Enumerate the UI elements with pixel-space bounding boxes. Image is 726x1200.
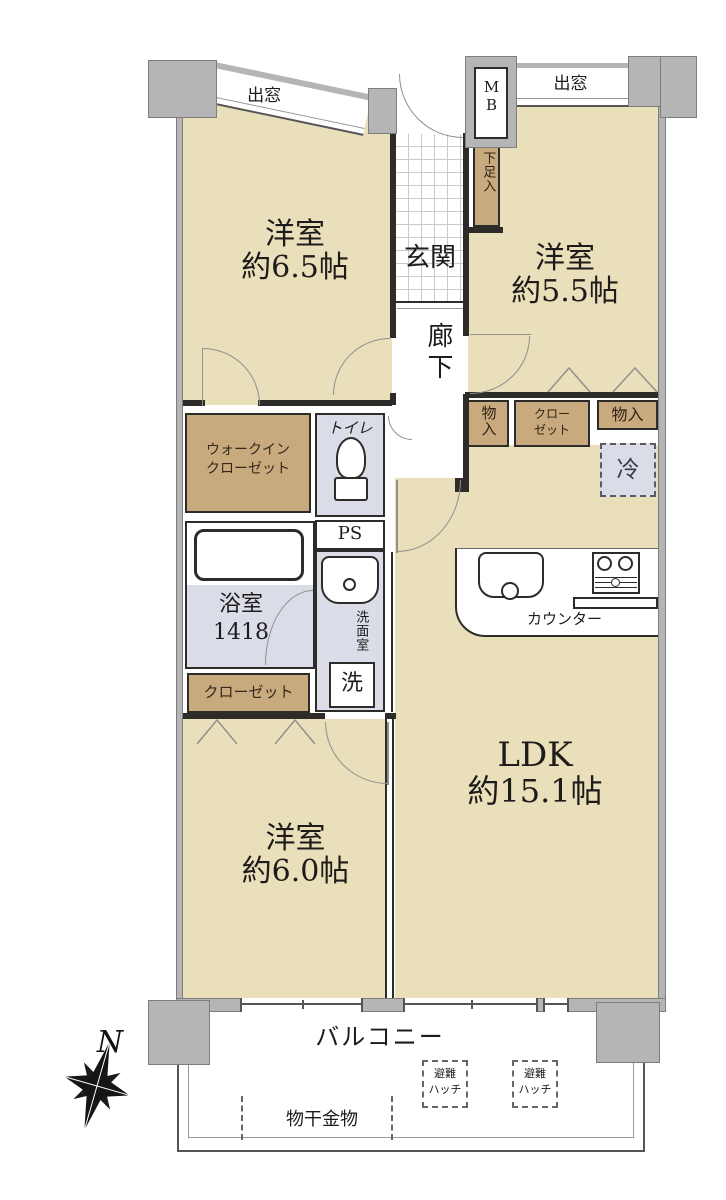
bedroom-b-name: 洋室 [470, 242, 660, 275]
wall-genkan-jog [463, 227, 503, 233]
laundry-bracket-right [391, 1096, 403, 1140]
window-track [545, 1003, 567, 1005]
genkan-step-line [395, 301, 465, 303]
closet-top-label-1: クロー [516, 408, 588, 421]
ldk-size: 約15.1帖 [440, 774, 630, 809]
bathroom-label-1: 浴室 [191, 593, 291, 617]
stove-knob [611, 578, 620, 587]
bedroom-b-door-leaf [470, 334, 531, 335]
meter-box: MB [474, 67, 508, 139]
ldk-name: LDK [440, 737, 630, 774]
bedroom-b-size: 約5.5帖 [470, 275, 660, 308]
washer-space: 洗 [329, 662, 375, 708]
bedroom-b-label: 洋室 約5.5帖 [470, 242, 660, 308]
storage-top-label: 物入 [480, 405, 497, 437]
escape-hatch-1-label-2: ハッチ [424, 1084, 466, 1096]
wall-hall-right-lower [463, 394, 469, 480]
wall-bedroom-c-top-1 [183, 713, 325, 719]
compass-minor-star [60, 1049, 133, 1122]
compass-rose [48, 1031, 147, 1140]
toilet-room: トイレ [315, 413, 385, 517]
pillar-top-left [148, 60, 217, 118]
floor-plan: 下足入 物入 クロー ゼット 物入 冷 ウォークイン クローゼット トイレ PS… [0, 0, 726, 1200]
bedroom-a-size: 約6.5帖 [200, 251, 390, 284]
escape-hatch-1: 避難 ハッチ [422, 1060, 468, 1108]
compass-north-label: N [96, 1025, 125, 1060]
counter-bar [573, 597, 658, 609]
bedroom-b-floor-1 [517, 105, 658, 145]
escape-hatch-2: 避難 ハッチ [512, 1060, 558, 1108]
kitchen-sink-drain [501, 582, 519, 600]
fridge-space: 冷 [600, 443, 656, 497]
washroom: 洗面室 洗 [315, 550, 385, 712]
ldk-door-leaf [396, 480, 398, 553]
wic-label-2: クローゼット [187, 462, 309, 477]
bedroom-c-size: 約6.0帖 [198, 855, 393, 888]
bedroom-c-name: 洋室 [198, 822, 393, 855]
escape-hatch-2-label-2: ハッチ [514, 1084, 556, 1096]
escape-hatch-1-label-1: 避難 [424, 1068, 466, 1080]
compass-facet-ns [84, 1042, 109, 1130]
window-tick [471, 1000, 473, 1009]
toilet-tank [334, 477, 368, 501]
walk-in-closet: ウォークイン クローゼット [185, 413, 311, 513]
genkan-step-line-2 [397, 308, 463, 309]
bathtub [194, 529, 304, 581]
pillar-bottom-right [596, 1002, 660, 1063]
window-tick [302, 1000, 304, 1009]
pipe-space: PS [315, 520, 385, 550]
stove-burner-right [618, 556, 633, 571]
storage-right-cabinet: 物入 [597, 400, 658, 430]
wall-washroom-ldk [391, 552, 393, 712]
bedroom-b-floor-2 [500, 143, 658, 233]
compass-facet-ew [64, 1077, 129, 1096]
closet-top-label-2: ゼット [516, 424, 588, 437]
compass-major-star [52, 1032, 143, 1139]
window-ldk-left [403, 998, 538, 1012]
wall-bedroom-a-bottom-2 [258, 400, 392, 406]
wall-right-outer [658, 103, 666, 1005]
closet-left: クローゼット [187, 673, 310, 713]
meter-box-label: MB [483, 78, 500, 114]
wic-label-1: ウォークイン [187, 443, 309, 458]
bedroom-a-label: 洋室 約6.5帖 [200, 218, 390, 284]
wall-hall-left-upper [390, 110, 396, 338]
counter-label: カウンター [492, 611, 637, 628]
wall-left-outer [176, 112, 183, 1005]
stove-burner-left [597, 556, 612, 571]
storage-right-label: 物入 [599, 406, 656, 424]
closet-left-label: クローゼット [189, 684, 308, 701]
window-bedroom-c [240, 998, 363, 1012]
genkan-label: 玄関 [397, 244, 463, 273]
hallway-label: 廊下 [408, 322, 452, 384]
stove-grate-3 [595, 587, 637, 588]
fridge-label: 冷 [602, 458, 654, 483]
wall-entry-block [368, 88, 397, 134]
escape-hatch-2-label-1: 避難 [514, 1068, 556, 1080]
wic-door-leaf [202, 348, 203, 406]
bay-window-left-label: 出窓 [229, 87, 299, 106]
meter-box-frame: MB [465, 56, 517, 148]
ldk-label: LDK 約15.1帖 [440, 737, 630, 810]
toilet-bowl [336, 437, 366, 479]
pillar-bottom-left [148, 1000, 210, 1065]
window-ldk-right [543, 998, 569, 1012]
bay-window-right-track [517, 98, 628, 99]
bay-window-right: 出窓 [517, 63, 628, 107]
toilet-door-arc [388, 416, 412, 440]
shoe-cabinet-label: 下足入 [480, 151, 494, 193]
pipe-space-label: PS [317, 524, 383, 544]
washbasin-drain [343, 578, 356, 591]
shoe-cabinet: 下足入 [473, 143, 500, 227]
toilet-label: トイレ [317, 420, 383, 437]
pillar-top-right-b [660, 56, 697, 118]
bedroom-c-label: 洋室 約6.0帖 [198, 822, 393, 888]
laundry-fitting-label: 物干金物 [252, 1110, 392, 1130]
washer-label: 洗 [331, 672, 373, 696]
bedroom-c-door-leaf [387, 722, 389, 785]
wall-genkan-right [463, 133, 469, 336]
washroom-label: 洗面室 [353, 610, 367, 652]
closet-top-cabinet: クロー ゼット [514, 400, 590, 447]
storage-top-cabinet: 物入 [467, 400, 509, 447]
wall-bedroom-b-bottom [465, 392, 658, 398]
kitchen-stove [592, 552, 640, 594]
balcony-label: バルコニー [280, 1024, 480, 1050]
bay-window-right-label: 出窓 [517, 75, 624, 94]
genkan-tile-floor [395, 133, 465, 303]
bedroom-a-name: 洋室 [200, 218, 390, 251]
